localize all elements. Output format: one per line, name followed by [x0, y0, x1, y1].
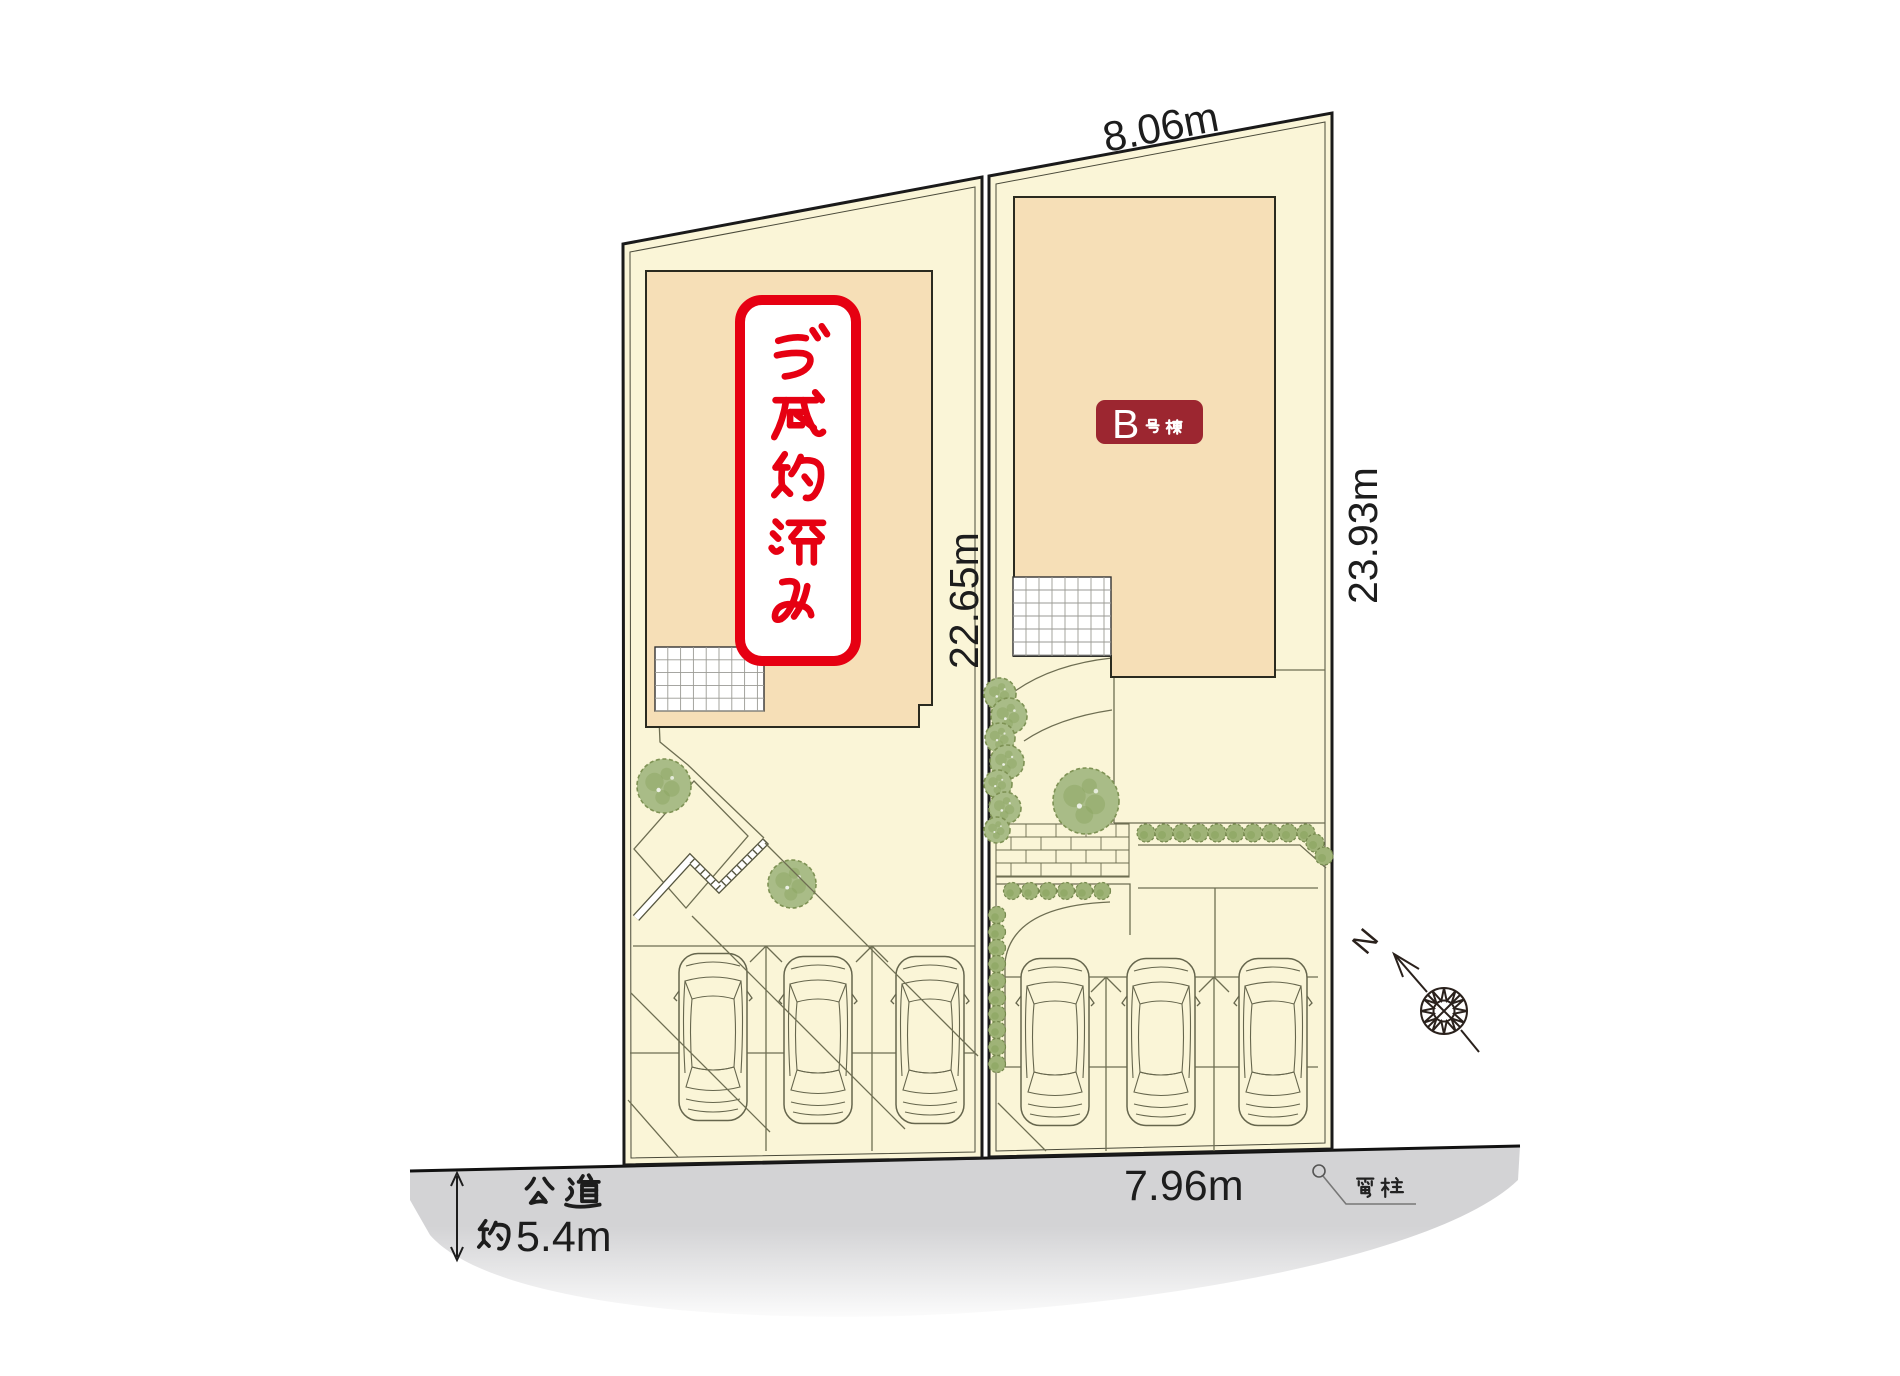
svg-text:7.96m: 7.96m: [1124, 1162, 1244, 1210]
svg-text:23.93m: 23.93m: [1340, 467, 1386, 604]
svg-text:B: B: [1112, 401, 1139, 447]
svg-text:22.65m: 22.65m: [941, 532, 987, 669]
svg-text:5.4m: 5.4m: [516, 1213, 612, 1261]
